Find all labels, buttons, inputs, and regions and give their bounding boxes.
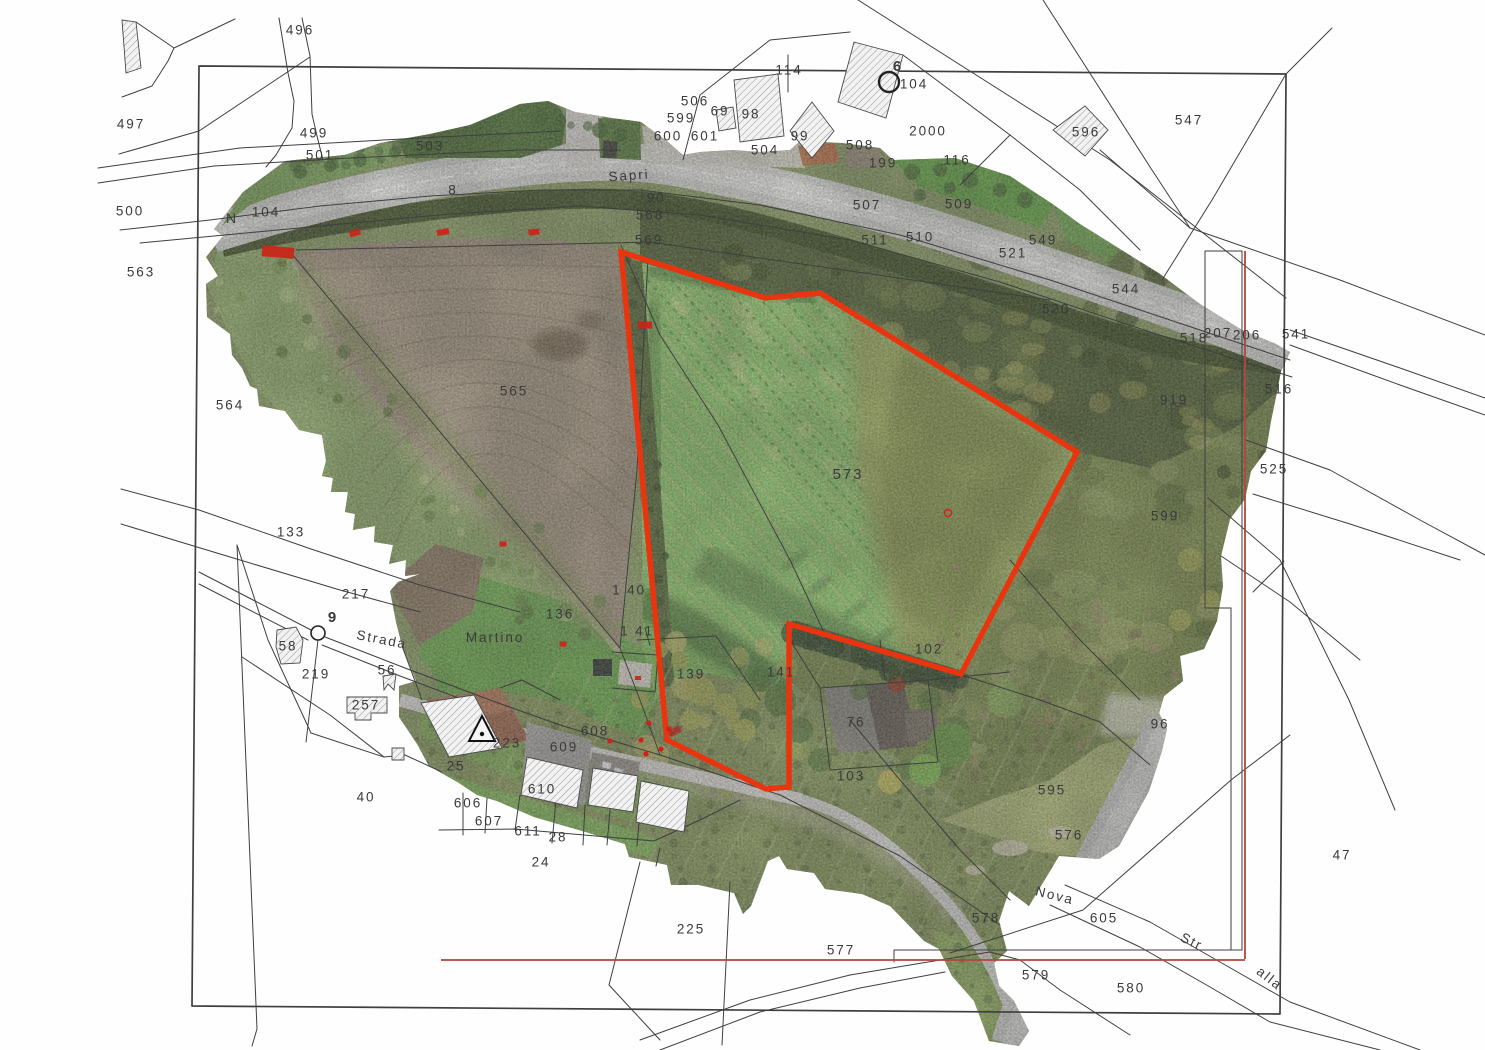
svg-text:76: 76 (847, 715, 866, 730)
svg-text:607: 607 (475, 814, 503, 829)
svg-text:139: 139 (677, 667, 705, 682)
svg-text:549: 549 (1029, 233, 1057, 248)
svg-text:96: 96 (1151, 717, 1170, 732)
svg-text:569: 569 (635, 233, 663, 248)
svg-text:497: 497 (117, 117, 145, 132)
svg-text:601: 601 (691, 129, 719, 144)
svg-text:564: 564 (216, 398, 244, 413)
svg-text:Martino: Martino (466, 630, 524, 645)
svg-text:510: 510 (906, 230, 934, 245)
svg-text:24: 24 (532, 855, 551, 870)
svg-text:610: 610 (528, 782, 556, 797)
svg-text:133: 133 (277, 525, 305, 540)
svg-text:9: 9 (328, 609, 338, 626)
svg-text:90: 90 (647, 191, 666, 206)
svg-text:2000: 2000 (909, 124, 947, 139)
svg-text:919: 919 (1160, 393, 1188, 408)
svg-text:219: 219 (302, 667, 330, 682)
svg-text:500: 500 (116, 204, 144, 219)
svg-text:544: 544 (1112, 282, 1140, 297)
svg-text:605: 605 (1090, 911, 1118, 926)
svg-text:516: 516 (1265, 382, 1293, 397)
svg-text:547: 547 (1175, 113, 1203, 128)
svg-text:56: 56 (378, 663, 397, 678)
svg-text:599: 599 (1151, 509, 1179, 524)
svg-text:506: 506 (681, 94, 709, 109)
svg-text:116: 116 (943, 153, 970, 168)
svg-text:496: 496 (286, 23, 314, 38)
svg-text:609: 609 (550, 740, 578, 755)
svg-text:104: 104 (900, 77, 928, 92)
svg-text:69: 69 (711, 104, 730, 119)
svg-text:578: 578 (972, 911, 1000, 926)
svg-text:102: 102 (915, 642, 943, 657)
svg-text:499: 499 (300, 126, 328, 141)
svg-text:503: 503 (416, 139, 444, 154)
svg-text:511: 511 (861, 233, 888, 248)
svg-text:98: 98 (742, 107, 761, 122)
svg-text:599: 599 (667, 111, 695, 126)
svg-text:509: 509 (945, 197, 973, 212)
svg-text:223: 223 (493, 736, 521, 751)
svg-text:217: 217 (342, 587, 370, 602)
svg-text:47: 47 (1333, 848, 1352, 863)
svg-text:501: 501 (306, 148, 334, 163)
svg-text:595: 595 (1038, 783, 1066, 798)
svg-text:Sapri: Sapri (608, 167, 650, 185)
svg-text:580: 580 (1117, 981, 1145, 996)
svg-text:518: 518 (1180, 331, 1208, 346)
svg-text:199: 199 (869, 156, 897, 171)
svg-text:568: 568 (636, 208, 664, 223)
svg-text:508: 508 (846, 138, 874, 153)
svg-text:99: 99 (791, 129, 810, 144)
svg-text:1 40: 1 40 (612, 583, 646, 598)
svg-text:541: 541 (1282, 327, 1310, 342)
svg-text:600: 600 (654, 129, 682, 144)
svg-text:579: 579 (1022, 968, 1050, 983)
svg-text:25: 25 (447, 759, 466, 774)
svg-text:225: 225 (677, 922, 705, 937)
svg-text:206: 206 (1233, 328, 1261, 343)
svg-text:504: 504 (751, 143, 779, 158)
svg-text:103: 103 (837, 769, 865, 784)
svg-text:521: 521 (999, 246, 1027, 261)
svg-text:40: 40 (357, 790, 376, 805)
svg-text:28: 28 (549, 830, 568, 845)
svg-text:525: 525 (1260, 462, 1288, 477)
svg-text:611: 611 (514, 824, 541, 839)
svg-text:1 41: 1 41 (620, 624, 654, 639)
svg-text:507: 507 (853, 198, 881, 213)
svg-text:58: 58 (279, 639, 298, 654)
svg-text:114: 114 (775, 63, 802, 78)
svg-text:577: 577 (827, 943, 855, 958)
svg-text:608: 608 (581, 724, 609, 739)
svg-text:565: 565 (500, 384, 528, 399)
svg-text:576: 576 (1055, 828, 1083, 843)
svg-text:8: 8 (448, 183, 457, 198)
svg-text:606: 606 (454, 796, 482, 811)
svg-text:520: 520 (1042, 302, 1070, 317)
svg-text:257: 257 (352, 698, 380, 713)
svg-text:563: 563 (127, 265, 155, 280)
svg-text:141: 141 (767, 665, 795, 680)
svg-text:573: 573 (833, 466, 864, 483)
svg-text:596: 596 (1072, 125, 1100, 140)
svg-text:104: 104 (252, 205, 280, 220)
svg-text:136: 136 (546, 607, 574, 622)
svg-text:N: N (226, 210, 238, 226)
svg-text:6: 6 (893, 58, 903, 75)
